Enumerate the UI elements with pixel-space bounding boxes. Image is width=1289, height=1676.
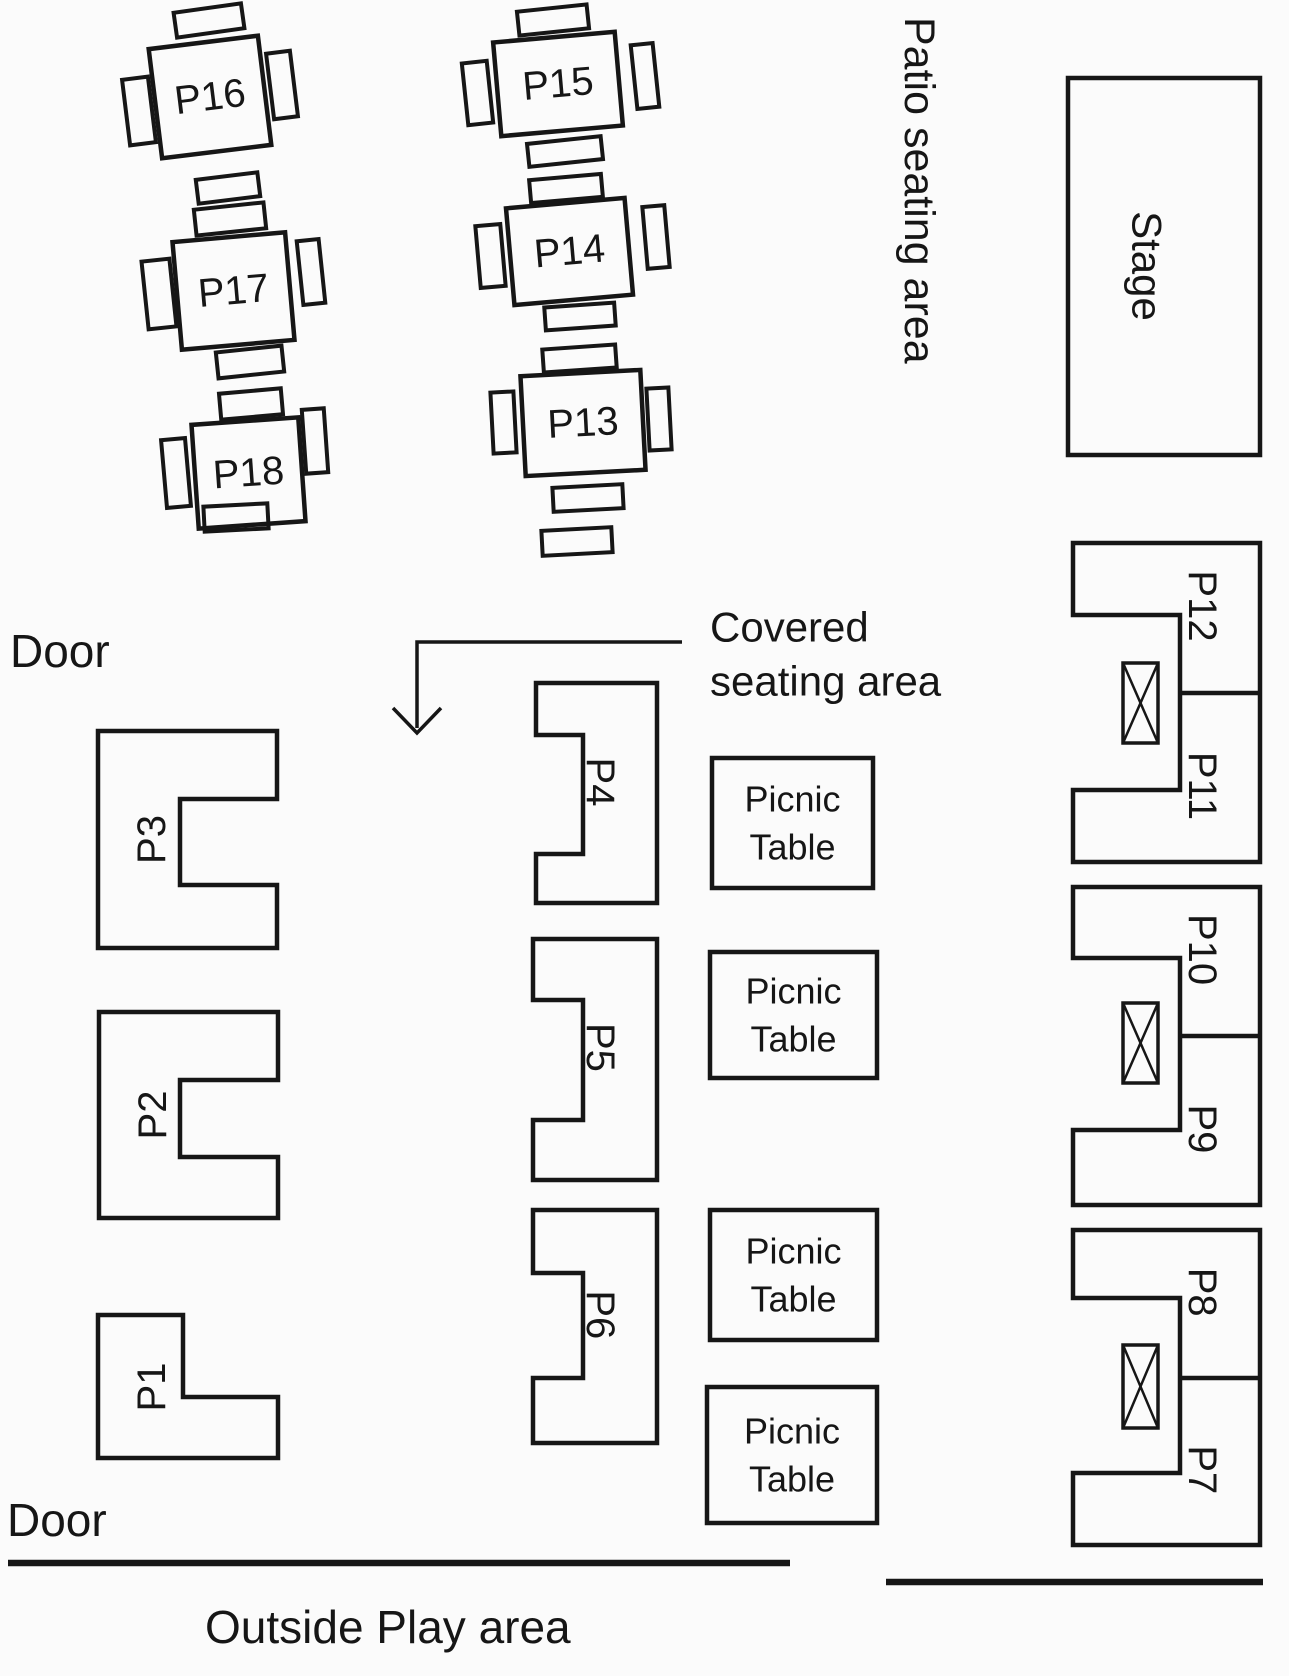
chair bbox=[475, 224, 505, 288]
booth-p3-outline bbox=[98, 731, 277, 948]
chair bbox=[544, 303, 615, 331]
chair bbox=[142, 259, 177, 330]
picnic-table-label: Table bbox=[750, 1019, 836, 1060]
picnic-table-label: Picnic bbox=[744, 779, 840, 820]
chair bbox=[174, 3, 245, 37]
picnic-table-label: Table bbox=[749, 827, 835, 868]
patio-table-label-p18: P18 bbox=[211, 449, 285, 498]
chair bbox=[266, 51, 298, 119]
chair bbox=[527, 136, 603, 167]
booth-label-p6: P6 bbox=[578, 1290, 622, 1339]
picnic-table-label: Table bbox=[749, 1459, 835, 1500]
booth-p1-outline bbox=[98, 1315, 278, 1458]
picnic-table-label: Picnic bbox=[745, 1231, 841, 1272]
booth-p8-p7-outline bbox=[1073, 1230, 1260, 1545]
door-label-top: Door bbox=[10, 625, 110, 677]
chair bbox=[219, 388, 283, 419]
picnic-table-label: Picnic bbox=[744, 1411, 840, 1452]
chair bbox=[297, 239, 326, 305]
booth-label-p8: P8 bbox=[1180, 1268, 1224, 1317]
booth-label-p2: P2 bbox=[131, 1091, 175, 1140]
booth-label-p9: P9 bbox=[1180, 1104, 1224, 1153]
booth-label-p12: P12 bbox=[1180, 570, 1224, 641]
booth-p10-p9-outline bbox=[1073, 887, 1260, 1205]
floor-plan: StageP16P17P18P15P14P13P3P2P1P4P5P6P12P1… bbox=[0, 0, 1289, 1676]
chair bbox=[302, 408, 328, 473]
picnic-table-label: Picnic bbox=[745, 971, 841, 1012]
chair bbox=[161, 438, 191, 508]
booth-label-p11: P11 bbox=[1180, 752, 1224, 820]
chair bbox=[462, 61, 493, 125]
booth-p12-p11-outline bbox=[1073, 543, 1260, 862]
patio-table-label-p14: P14 bbox=[532, 226, 607, 276]
chair bbox=[542, 344, 616, 372]
door-label-bottom: Door bbox=[7, 1494, 107, 1546]
outside-play-area-label: Outside Play area bbox=[205, 1601, 571, 1653]
stage-label: Stage bbox=[1124, 211, 1171, 321]
picnic-table-3 bbox=[710, 1210, 877, 1340]
chair bbox=[646, 387, 671, 450]
patio-table-label-p17: P17 bbox=[196, 266, 271, 316]
chair bbox=[541, 527, 612, 556]
chair bbox=[216, 346, 284, 379]
patio-table-label-p15: P15 bbox=[521, 59, 596, 109]
picnic-table-4 bbox=[707, 1387, 877, 1523]
patio-table-label-p13: P13 bbox=[546, 399, 619, 447]
covered-area-label: Covered bbox=[710, 604, 869, 651]
chair bbox=[552, 484, 623, 512]
chair bbox=[196, 172, 260, 203]
booth-label-p10: P10 bbox=[1180, 914, 1224, 985]
covered-area-label: seating area bbox=[710, 658, 942, 705]
chair bbox=[122, 77, 156, 146]
booth-label-p1: P1 bbox=[130, 1363, 174, 1412]
patio-area-label: Patio seating area bbox=[895, 17, 943, 364]
booth-label-p7: P7 bbox=[1180, 1445, 1224, 1494]
booth-label-p5: P5 bbox=[578, 1023, 622, 1072]
patio-table-label-p16: P16 bbox=[172, 71, 248, 123]
picnic-table-1 bbox=[712, 758, 873, 888]
picnic-table-label: Table bbox=[750, 1279, 836, 1320]
booth-p2-outline bbox=[99, 1012, 278, 1218]
chair bbox=[517, 4, 589, 35]
chair bbox=[194, 202, 266, 235]
chair bbox=[631, 43, 660, 109]
booth-label-p3: P3 bbox=[130, 815, 174, 864]
chair bbox=[490, 391, 516, 453]
floor-plan-canvas: StageP16P17P18P15P14P13P3P2P1P4P5P6P12P1… bbox=[0, 0, 1289, 1676]
chair bbox=[642, 205, 669, 269]
booth-label-p4: P4 bbox=[578, 758, 622, 807]
